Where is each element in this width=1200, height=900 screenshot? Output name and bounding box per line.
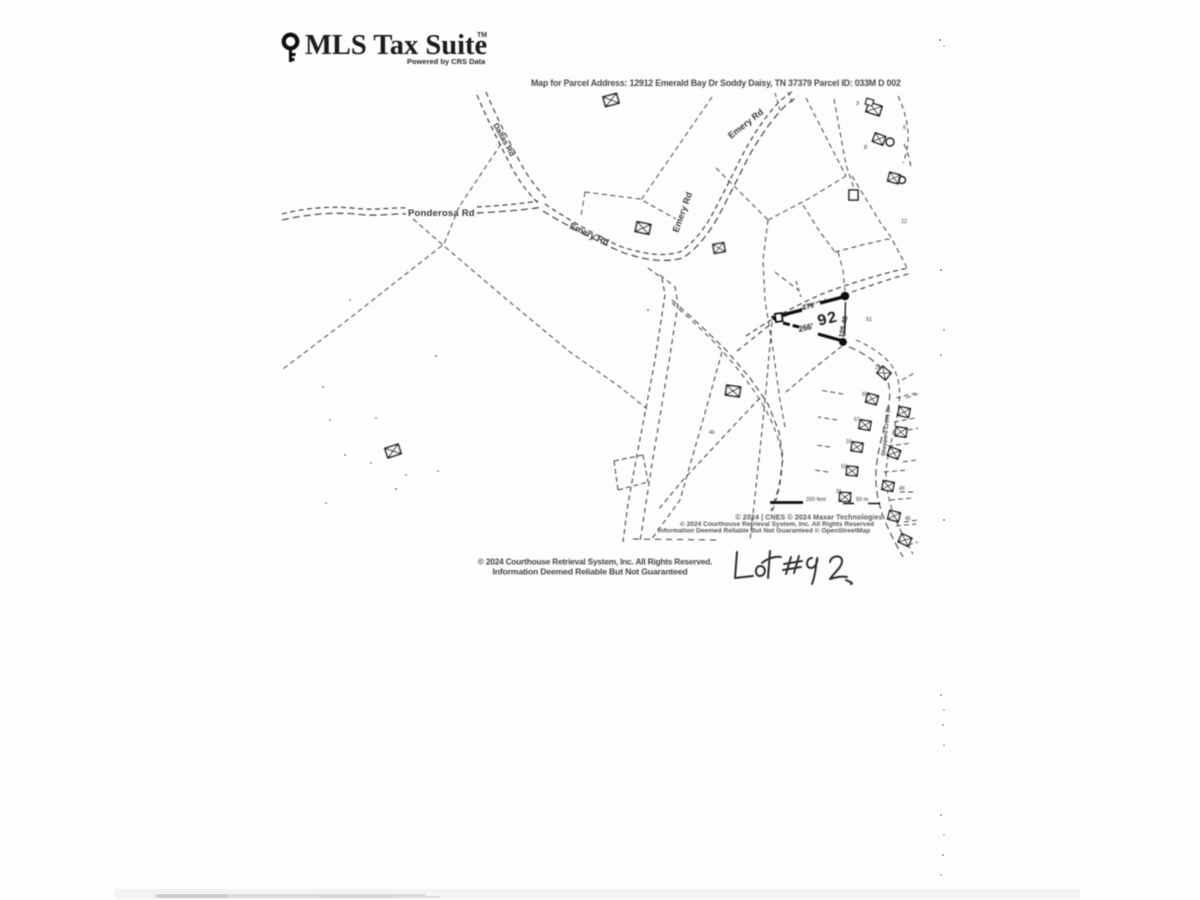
- svg-text:57: 57: [854, 417, 860, 423]
- svg-text:TM: TM: [477, 32, 487, 39]
- svg-text:© 2024 Courthouse Retrieval Sy: © 2024 Courthouse Retrieval System, Inc.…: [478, 557, 712, 567]
- svg-text:16: 16: [846, 439, 852, 445]
- svg-text:49: 49: [899, 486, 905, 492]
- svg-text:Map for Parcel Address: 12912: Map for Parcel Address: 12912 Emerald Ba…: [531, 78, 901, 88]
- svg-text:8: 8: [864, 145, 867, 151]
- svg-text:50 m: 50 m: [856, 497, 869, 503]
- svg-text:12: 12: [901, 219, 907, 225]
- svg-text:31: 31: [836, 489, 842, 495]
- svg-text:3: 3: [856, 101, 859, 107]
- svg-text:52: 52: [841, 464, 847, 470]
- svg-text:51: 51: [866, 317, 872, 323]
- svg-text:45: 45: [905, 516, 911, 522]
- svg-text:55: 55: [862, 392, 868, 398]
- svg-text:Ponderosa Rd: Ponderosa Rd: [408, 208, 475, 219]
- svg-text:200 feet: 200 feet: [806, 497, 826, 503]
- svg-text:23: 23: [875, 365, 881, 371]
- svg-text:Information Deemed Reliable Bu: Information Deemed Reliable But Not Guar…: [493, 567, 688, 577]
- svg-text:46: 46: [709, 430, 715, 436]
- svg-text:Information Deemed Reliable Bu: Information Deemed Reliable But Not Guar…: [658, 527, 870, 535]
- svg-text:Powered by CRS Data: Powered by CRS Data: [407, 57, 486, 66]
- svg-text:6: 6: [903, 125, 906, 131]
